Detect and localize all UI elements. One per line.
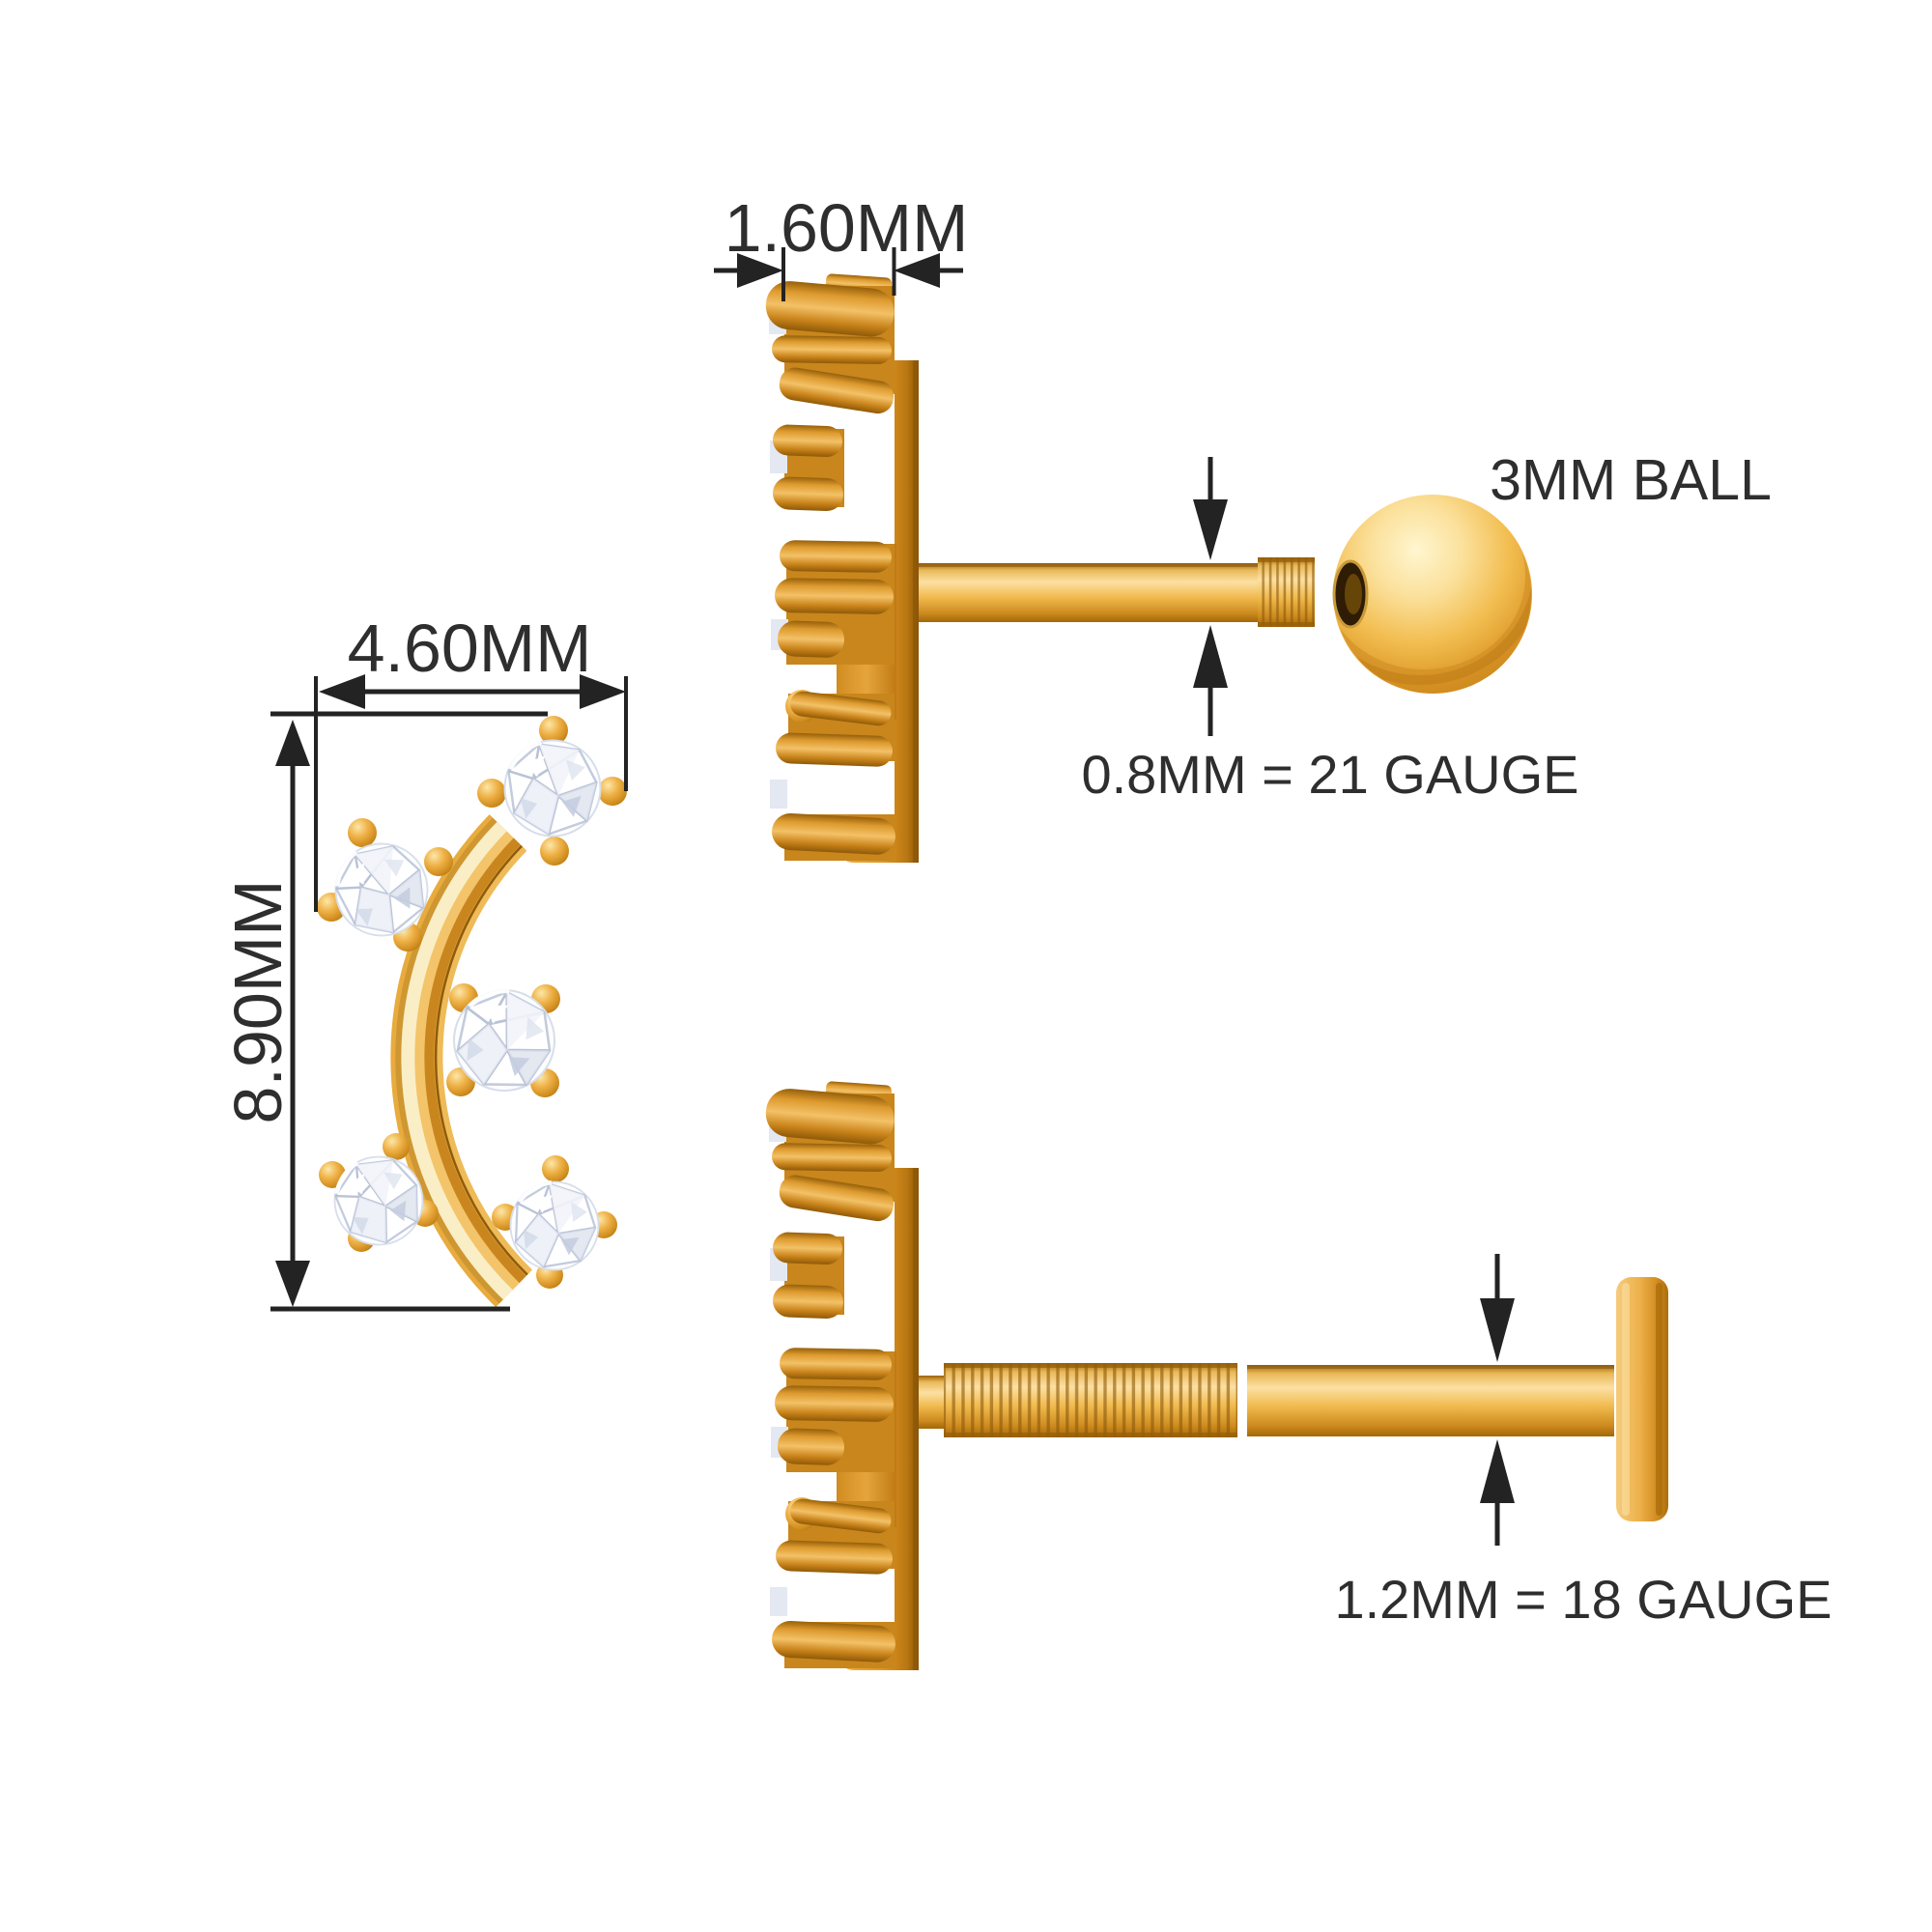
svg-text:3MM BALL: 3MM BALL <box>1490 448 1772 512</box>
svg-text:4.60MM: 4.60MM <box>348 611 592 686</box>
svg-text:1.60MM: 1.60MM <box>724 190 969 266</box>
svg-text:8.90MM: 8.90MM <box>220 880 296 1124</box>
svg-text:1.2MM = 18 GAUGE: 1.2MM = 18 GAUGE <box>1334 1569 1832 1630</box>
svg-text:0.8MM = 21 GAUGE: 0.8MM = 21 GAUGE <box>1081 744 1578 805</box>
